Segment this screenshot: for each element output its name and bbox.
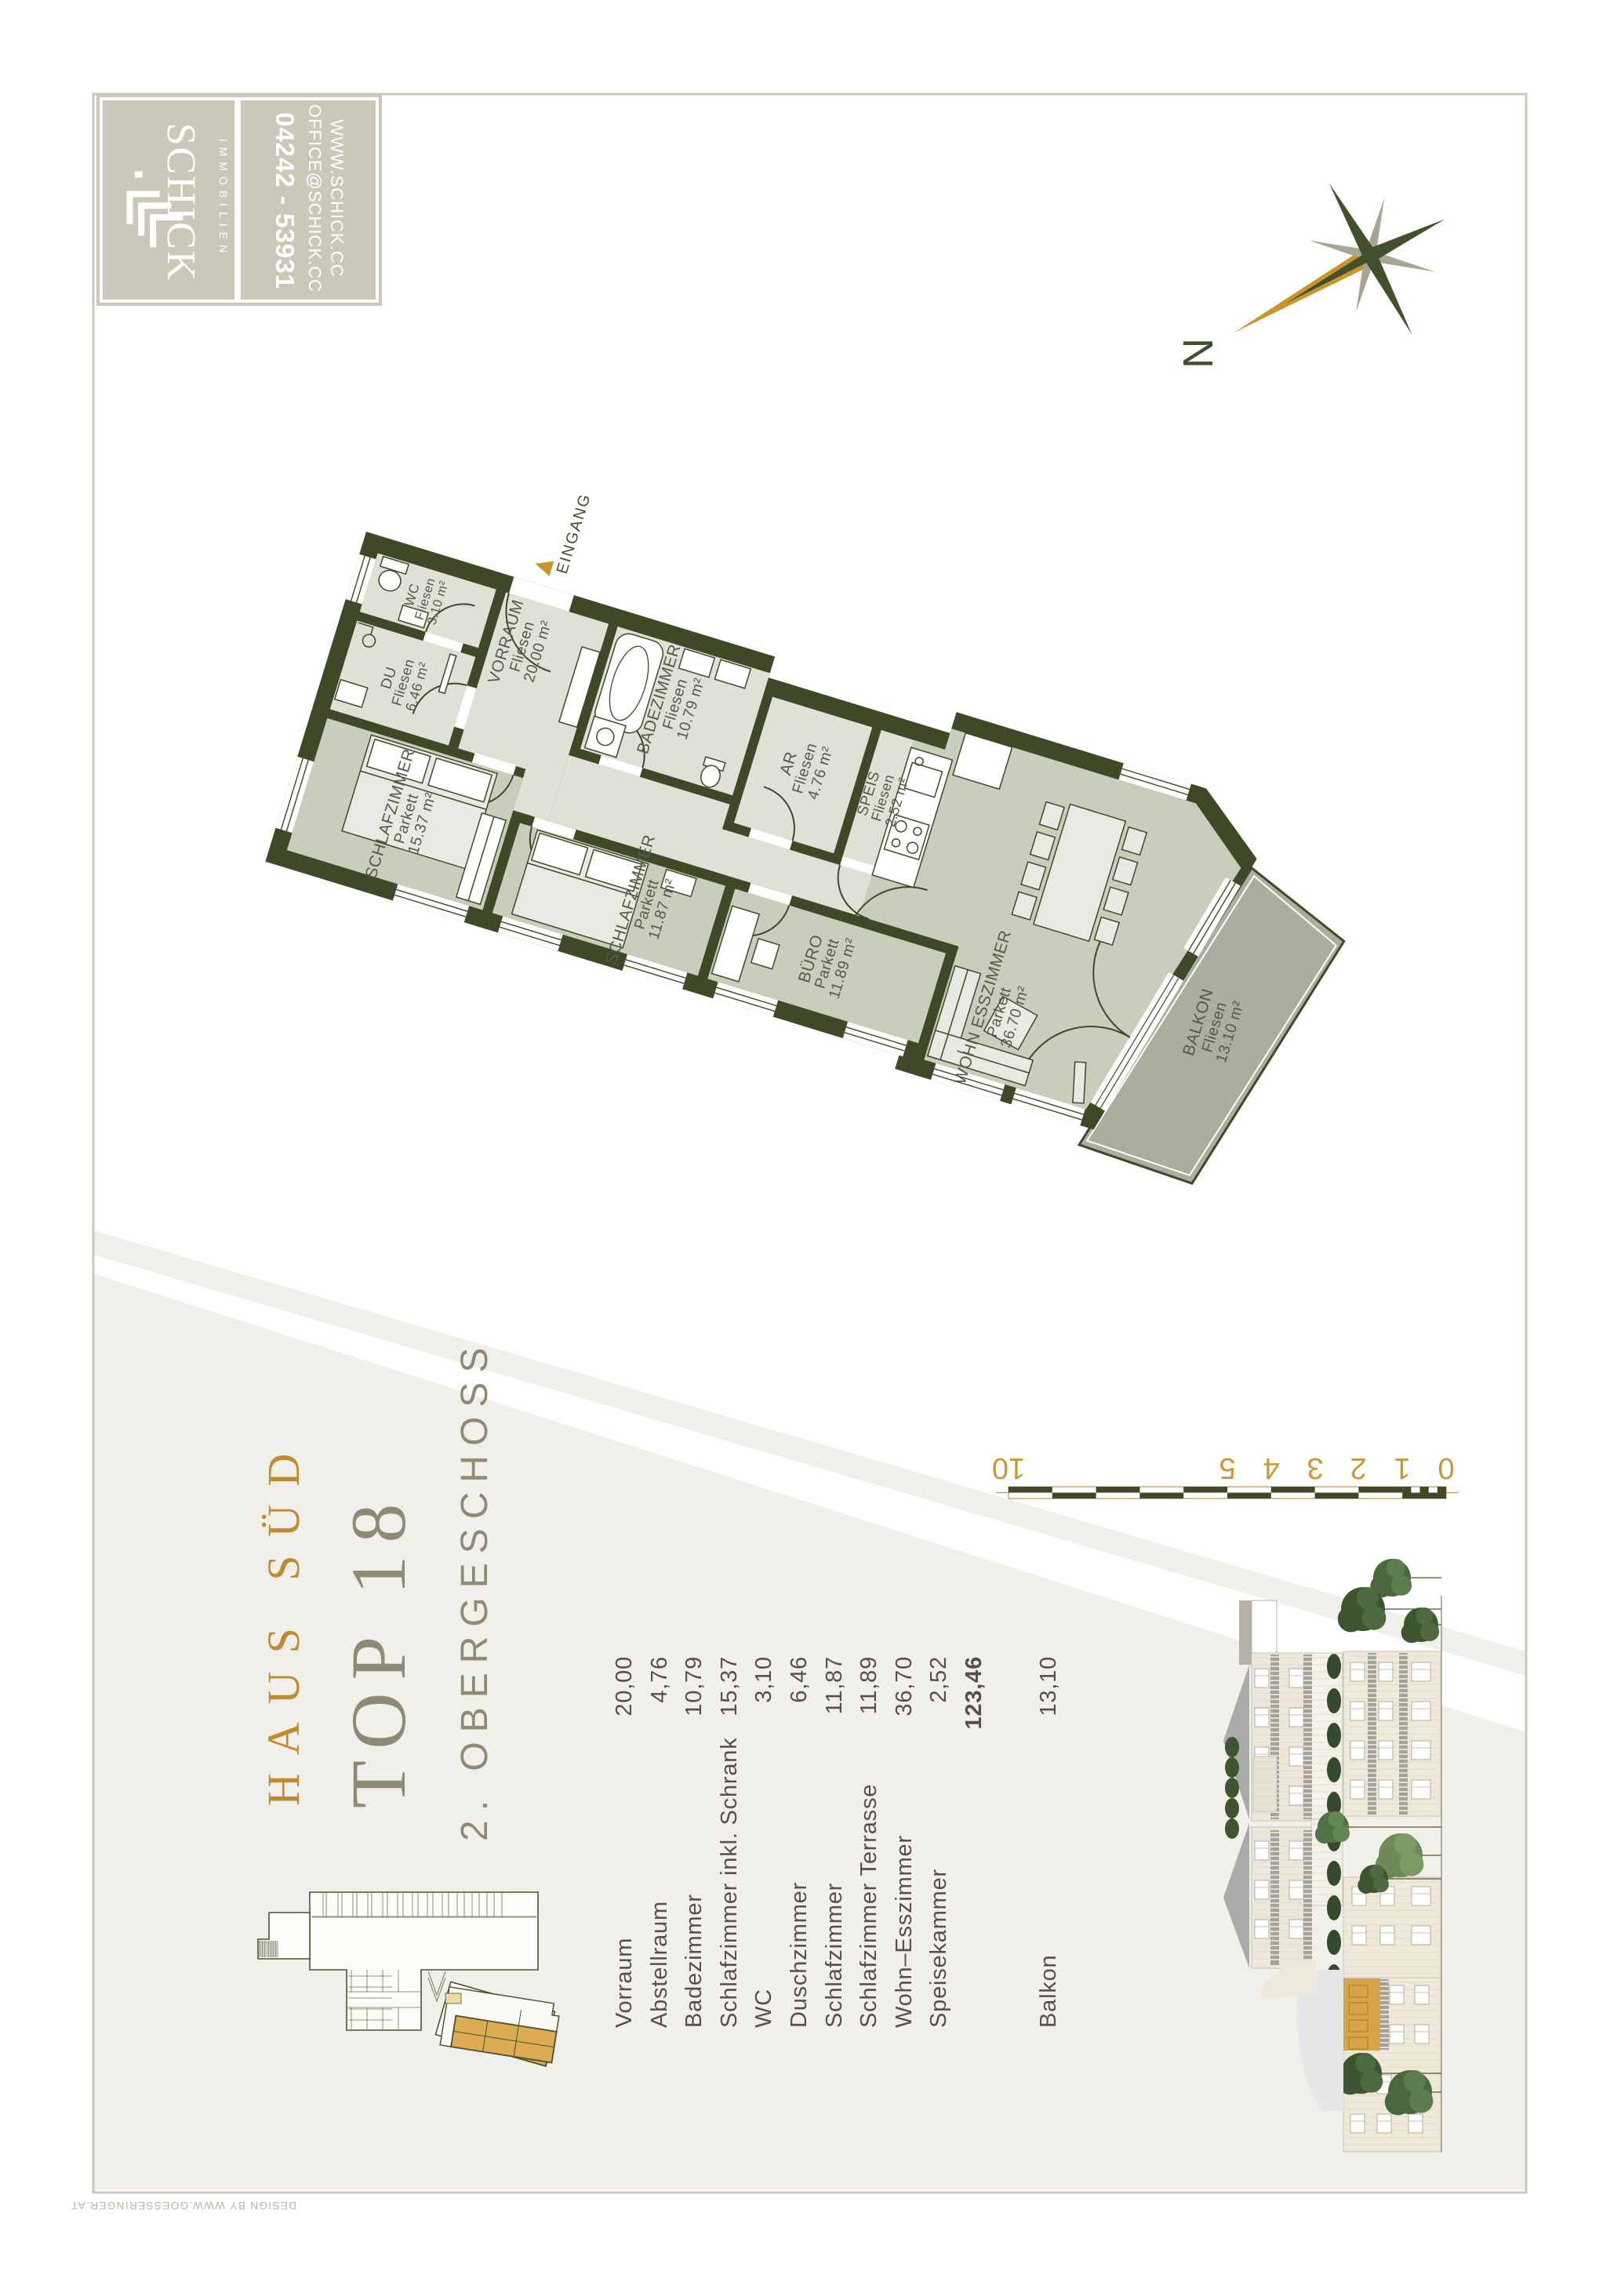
svg-text:15,37: 15,37 xyxy=(717,1656,742,1717)
svg-text:Duschzimmer: Duschzimmer xyxy=(787,1882,812,2028)
svg-text:2: 2 xyxy=(1350,1451,1366,1484)
svg-text:4,76: 4,76 xyxy=(647,1656,672,1703)
svg-text:11,89: 11,89 xyxy=(856,1656,881,1714)
svg-text:N: N xyxy=(1175,338,1222,369)
svg-text:HAUS SÜD: HAUS SÜD xyxy=(258,1436,309,1806)
svg-text:6,46: 6,46 xyxy=(787,1656,812,1703)
svg-text:2,52: 2,52 xyxy=(926,1656,951,1703)
svg-text:36,70: 36,70 xyxy=(892,1656,917,1717)
svg-text:SCHICK: SCHICK xyxy=(158,123,203,282)
svg-text:3: 3 xyxy=(1307,1451,1323,1484)
svg-text:Speisekammer: Speisekammer xyxy=(926,1869,951,2028)
svg-text:TOP 18: TOP 18 xyxy=(335,1491,422,1808)
svg-text:Wohn–Esszimmer: Wohn–Esszimmer xyxy=(892,1835,917,2028)
svg-text:Balkon: Balkon xyxy=(1036,1955,1061,2028)
svg-text:OFFICE@SCHICK.CC: OFFICE@SCHICK.CC xyxy=(305,104,325,292)
svg-text:123,46: 123,46 xyxy=(961,1656,987,1730)
svg-text:2. OBERGESCHOSS: 2. OBERGESCHOSS xyxy=(454,1339,496,1841)
svg-text:0: 0 xyxy=(1437,1451,1454,1484)
svg-text:IMMOBILIEN: IMMOBILIEN xyxy=(217,139,230,258)
svg-text:11,87: 11,87 xyxy=(822,1656,847,1714)
svg-text:WC: WC xyxy=(751,1989,776,2028)
svg-text:Schlafzimmer inkl. Schrank: Schlafzimmer inkl. Schrank xyxy=(717,1737,742,2028)
svg-text:Schlafzimmer Terrasse: Schlafzimmer Terrasse xyxy=(856,1784,881,2028)
svg-text:04242 - 53931: 04242 - 53931 xyxy=(271,112,300,289)
svg-text:1: 1 xyxy=(1394,1451,1410,1484)
svg-text:Vorraum: Vorraum xyxy=(612,1938,637,2028)
svg-text:WWW.SCHICK.CC: WWW.SCHICK.CC xyxy=(327,119,347,277)
svg-text:Abstellraum: Abstellraum xyxy=(647,1901,672,2028)
svg-text:5: 5 xyxy=(1219,1451,1235,1484)
svg-text:13,10: 13,10 xyxy=(1036,1656,1061,1717)
svg-text:10,79: 10,79 xyxy=(681,1656,707,1717)
svg-text:Schlafzimmer: Schlafzimmer xyxy=(822,1883,847,2028)
svg-text:4: 4 xyxy=(1263,1451,1279,1484)
svg-text:10: 10 xyxy=(992,1451,1025,1484)
svg-text:20,00: 20,00 xyxy=(612,1656,637,1717)
svg-text:3,10: 3,10 xyxy=(751,1656,776,1703)
svg-text:DESIGN BY WWW.GOESSERINGER.AT: DESIGN BY WWW.GOESSERINGER.AT xyxy=(71,2200,296,2211)
svg-text:Badezimmer: Badezimmer xyxy=(681,1894,707,2028)
